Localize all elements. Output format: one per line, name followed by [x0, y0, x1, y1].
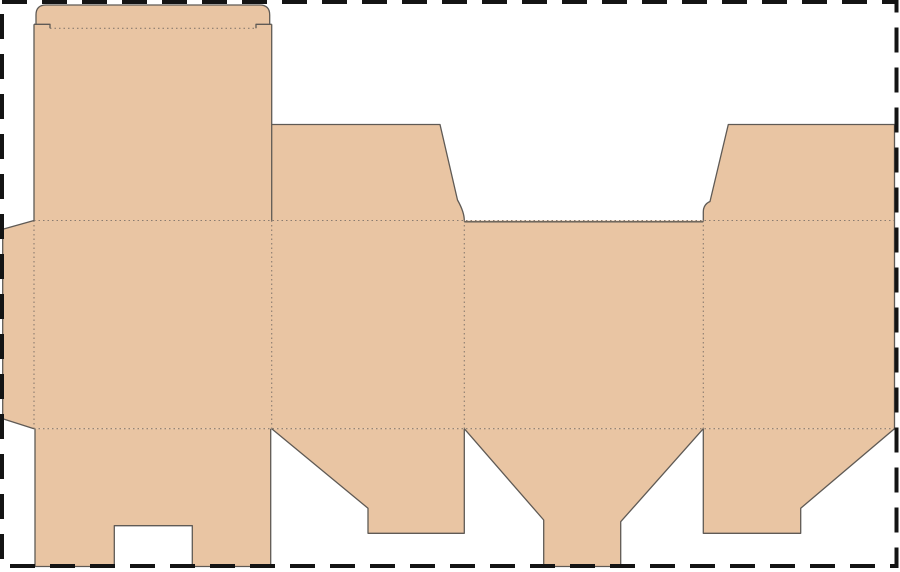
dust-flap-top-left: [272, 125, 465, 221]
carton-dieline-drawing: [0, 0, 900, 572]
body-band-with-glue-tab: [3, 221, 895, 429]
dust-flap-top-right: [703, 125, 894, 221]
dieline-canvas: [0, 0, 900, 572]
lid-panel: [34, 24, 272, 220]
